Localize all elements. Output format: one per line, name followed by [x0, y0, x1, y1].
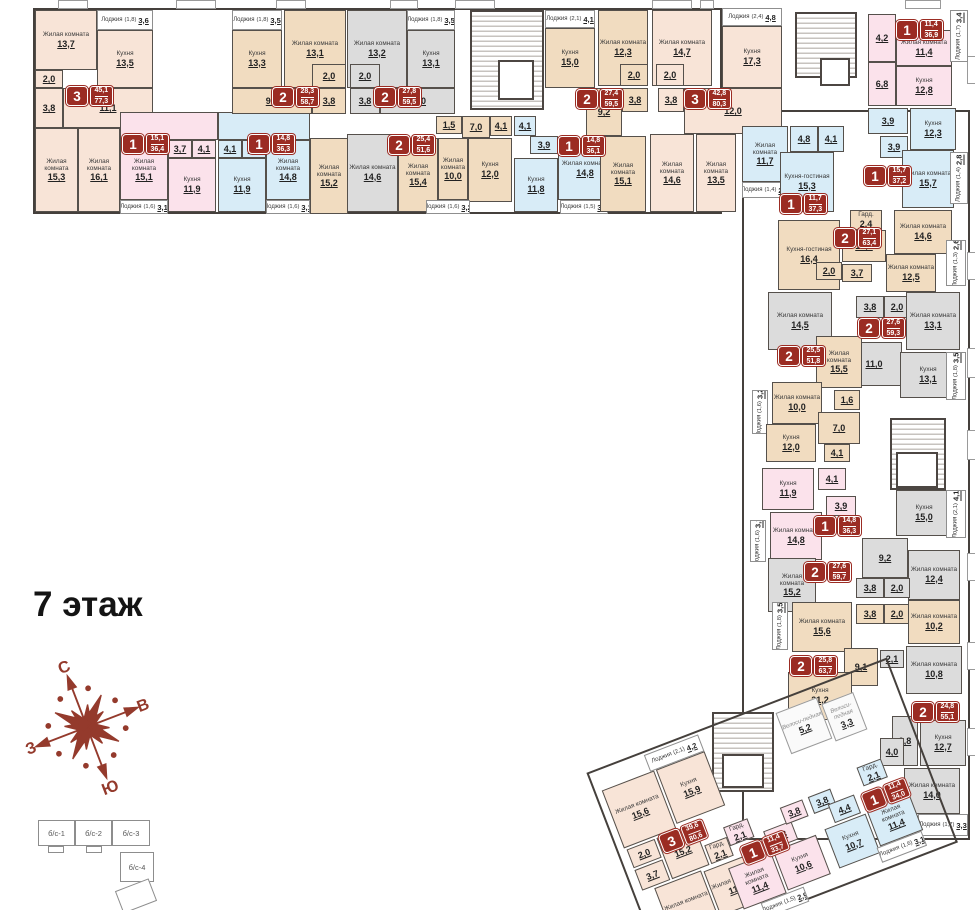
apt-14-living-room-3: Жилая комната13,1 [906, 292, 960, 350]
balcony-tab-15 [967, 728, 975, 756]
apartment-12-living-area: 11,7 [809, 194, 823, 204]
apartment-1-badge[interactable]: 345,177,3 [66, 86, 113, 106]
apt-8-living-room-2-area: 12,3 [614, 47, 632, 57]
apt-1-kitchen-2-area: 13,5 [116, 58, 134, 68]
apt-6-living-room-3-area: 15,4 [409, 177, 427, 187]
apt-10-loggia-2-name: Лоджия [956, 39, 963, 60]
key-plan-section-4-label: б/с-4 [129, 863, 146, 872]
apt-4-loggia-0-dims: (1,8) [256, 17, 268, 23]
apartment-15-living-area: 25,5 [807, 346, 821, 356]
apt-8-hall-5-area: 3,8 [629, 95, 642, 105]
apt-2-hall-3-area: 4,1 [198, 144, 211, 154]
apartment-4-living-area: 28,3 [301, 87, 315, 97]
apartment-18-badge[interactable]: 225,863,7 [790, 656, 837, 676]
apartment-2-badge[interactable]: 115,136,4 [122, 134, 169, 154]
balcony-tab-3 [276, 0, 306, 9]
apt-2-kitchen-4: Кухня11,9 [168, 158, 216, 212]
apt-5-kitchen-2-name: Кухня [422, 50, 439, 57]
compass-rose: С В Ю З [0, 630, 184, 824]
apartment-16-total-area: 36,3 [843, 527, 857, 536]
apt-15-kitchen-5-name: Кухня [782, 434, 799, 441]
apt-1-hall-4-area: 3,8 [43, 103, 56, 113]
apt-8-kitchen-1-area: 15,0 [561, 57, 579, 67]
apt-9-loggia-6-area: 4,8 [765, 13, 775, 22]
apartment-8-areas: 27,459,5 [600, 89, 624, 109]
apt-12-hall-2: 4,8 [790, 126, 818, 152]
apartment-16-badge[interactable]: 114,836,3 [814, 516, 861, 536]
apartment-11-rooms-count: 1 [864, 166, 886, 186]
apt-19-kitchen-3: Кухня12,7 [920, 720, 966, 766]
apt-18-hall-3-area: 2,0 [891, 609, 904, 619]
apartment-5-total-area: 59,5 [403, 98, 417, 107]
apt-9-living-room-4-area: 14,6 [663, 175, 681, 185]
apt-16-hall-2-area: 3,9 [835, 501, 848, 511]
apt-6-hall-2: 4,1 [490, 116, 512, 136]
apt-2-loggia-5: Лоджия(1,6)3,1 [120, 200, 168, 214]
apartment-10-living-area: 11,4 [925, 20, 939, 30]
apartment-6-total-area: 51,6 [417, 146, 431, 155]
apt-14-living-room-0-name: Жилая комната [777, 312, 823, 319]
apt-4-hall-5-area: 3,8 [323, 96, 336, 106]
apt-17-loggia-1: Лоджия(2,1)4,1 [946, 490, 966, 538]
apt-3-living-room-4-name: Жилая комната [267, 158, 309, 172]
apartment-14-badge[interactable]: 227,659,3 [858, 318, 905, 338]
apt-16-hall-2: 3,9 [826, 496, 856, 516]
apt-5-kitchen-2-area: 13,1 [422, 58, 440, 68]
apartment-13-rooms-count: 2 [834, 228, 856, 248]
apt-1-living-room-0-area: 13,7 [57, 39, 75, 49]
apt-4-kitchen-1-name: Кухня [248, 50, 265, 57]
apt-19-living-room-1-area: 10,8 [925, 669, 943, 679]
apt-21-loggia-5-name: Лоджия [762, 900, 784, 910]
key-plan-section-2: б/с-2 [75, 820, 112, 846]
apt-13-kitchen-living-0-name: Кухня-гостиная [786, 246, 831, 253]
apartment-12-badge[interactable]: 111,737,3 [780, 194, 827, 214]
apt-9-living-room-5-name: Жилая комната [697, 161, 735, 175]
apartment-9-badge[interactable]: 342,880,3 [684, 89, 731, 109]
apartment-16-rooms-count: 1 [814, 516, 836, 536]
compass-south-label: Ю [99, 776, 121, 799]
apt-7-living-room-3-area: 14,8 [576, 168, 594, 178]
apt-10-living-room-1-name: Жилая комната [901, 39, 947, 46]
apt-10-loggia-2-dims: (1,7) [956, 25, 962, 37]
apt-13-loggia-7-dims: (1,3) [953, 252, 959, 264]
apt-14-loggia-6: Лоджия(1,8)3,5 [946, 352, 966, 400]
apartment-12-total-area: 37,3 [809, 205, 823, 214]
apartment-15-rooms-count: 2 [778, 346, 800, 366]
apt-18-kitchen-6-name: Кухня [811, 687, 828, 694]
apt-7-loggia-4-name: Лоджия [560, 204, 581, 211]
apt-1-hall-3: 2,0 [35, 70, 63, 88]
apt-8-living-room-6: Жилая комната15,1 [600, 136, 646, 212]
apartment-19-rooms-count: 2 [912, 702, 934, 722]
apt-12-hall-3: 4,1 [818, 126, 844, 152]
apartment-7-areas: 14,836,1 [582, 136, 606, 156]
apt-6-living-room-4-area: 10,0 [444, 171, 462, 181]
apt-20-living-room-7-name: Жилая комната [663, 890, 709, 910]
apt-9-living-room-0-area: 14,7 [673, 47, 691, 57]
apartment-12-rooms-count: 1 [780, 194, 802, 214]
apt-13-hall-4: 2,0 [816, 262, 842, 280]
apt-4-living-room-6-area: 15,2 [320, 178, 338, 188]
apt-14-living-room-3-name: Жилая комната [910, 312, 956, 319]
apt-1-kitchen-2: Кухня13,5 [97, 30, 153, 88]
apt-11-loggia-4-area: 2,8 [955, 154, 964, 164]
apt-7-hall-1: 3,9 [530, 136, 558, 154]
apt-13-hall-5-area: 3,7 [851, 268, 864, 278]
apt-19-living-room-1: Жилая комната10,8 [906, 646, 962, 694]
apt-14-kitchen-5-area: 13,1 [919, 374, 937, 384]
apartment-17-badge[interactable]: 227,659,7 [804, 562, 851, 582]
apt-14-loggia-6-dims: (1,8) [953, 365, 959, 377]
apt-8-hall-3: 2,0 [620, 64, 648, 86]
apt-6-living-room-4: Жилая комната10,0 [438, 138, 468, 200]
compass-west-label: З [23, 738, 39, 758]
apt-2-hall-2: 3,7 [168, 140, 192, 158]
apt-16-loggia-4: Лоджия(1,6)3,1 [750, 520, 766, 562]
apt-19-kitchen-3-name: Кухня [934, 734, 951, 741]
apt-16-loggia-4-name: Лоджия [755, 544, 762, 562]
apartment-6-rooms-count: 2 [388, 135, 410, 155]
apartment-11-badge[interactable]: 115,737,2 [864, 166, 911, 186]
apt-15-kitchen-5: Кухня12,0 [766, 424, 816, 462]
elevator-1 [498, 60, 534, 100]
apartment-2-total-area: 36,4 [151, 145, 165, 154]
apt-11-loggia-4-name: Лоджия [956, 181, 963, 202]
apartment-2-living-area: 15,1 [151, 134, 165, 144]
apartment-8-badge[interactable]: 227,459,5 [576, 89, 623, 109]
key-plan-section-2-label: б/с-2 [85, 829, 102, 838]
apt-22-loggia-5-area: 3,1 [913, 834, 926, 846]
apartment-14-areas: 27,659,3 [882, 318, 906, 338]
elevator-2 [820, 58, 850, 86]
apt-12-loggia-1-name: Лоджия [742, 187, 762, 194]
apt-17-loggia-1-dims: (2,1) [953, 503, 959, 515]
apt-13-hall-5: 3,7 [842, 264, 872, 282]
apartment-2-areas: 15,136,4 [146, 134, 170, 154]
apt-9-hall-1-area: 2,0 [664, 70, 677, 80]
apt-19-kitchen-3-area: 12,7 [934, 742, 952, 752]
apt-19-living-room-5-area: 14,0 [923, 790, 941, 800]
apartment-14-living-area: 27,6 [887, 318, 901, 328]
apt-5-loggia-1-dims: (1,8) [430, 17, 442, 23]
apt-3-kitchen-3-area: 11,9 [233, 184, 250, 194]
apt-3-loggia-5-dims: (1,6) [287, 204, 299, 210]
apt-11-kitchen-1: Кухня12,3 [910, 108, 956, 150]
apartment-17-total-area: 59,7 [833, 573, 847, 582]
apt-17-hall-5: 3,8 [856, 578, 884, 598]
apt-5-living-room-6-name: Жилая комната [349, 164, 395, 171]
apt-7-hall-1-area: 3,9 [538, 140, 551, 150]
balcony-tab-6 [652, 0, 692, 9]
apartment-19-living-area: 24,8 [941, 702, 955, 712]
apt-5-living-room-0-name: Жилая комната [354, 40, 400, 47]
apartment-9-areas: 42,880,3 [708, 89, 732, 109]
apartment-10-badge[interactable]: 111,436,9 [896, 20, 943, 40]
apt-10-loggia-2-area: 3,4 [955, 12, 964, 22]
apt-13-living-room-3-area: 14,6 [914, 231, 932, 241]
apt-9-living-room-4-name: Жилая комната [651, 161, 693, 175]
apt-20-loggia-2-dims: (2,1) [673, 746, 686, 756]
apt-9-loggia-6: Лоджия(2,4)4,8 [722, 8, 782, 26]
apt-8-loggia-0-dims: (2,1) [569, 16, 581, 22]
apartment-15-badge[interactable]: 225,551,8 [778, 346, 825, 366]
apt-16-kitchen-0-name: Кухня [779, 480, 796, 487]
apt-7-loggia-4-dims: (1,5) [583, 204, 595, 210]
key-plan-outline-1 [48, 846, 64, 853]
apartment-9-living-area: 42,8 [713, 89, 727, 99]
apt-2-living-room-1-name: Жилая комната [121, 158, 167, 172]
apt-20-loggia-2-area: 4,2 [685, 740, 698, 752]
apt-6-loggia-6: Лоджия(1,6)3,2 [426, 200, 470, 214]
apt-18-hall-2-area: 3,8 [864, 609, 877, 619]
apt-2-loggia-5-area: 3,1 [157, 203, 167, 212]
apartment-13-badge[interactable]: 227,163,4 [834, 228, 881, 248]
apt-19-loggia-6: Лоджия(1,7)3,3 [918, 814, 968, 836]
apartment-13-living-area: 27,1 [863, 228, 877, 238]
apt-21-loggia-5-dims: (1,5) [783, 895, 796, 905]
apartment-4-rooms-count: 2 [272, 87, 294, 107]
apt-9-hall-2: 3,8 [658, 88, 684, 112]
apartment-19-badge[interactable]: 224,855,1 [912, 702, 959, 722]
apartment-18-total-area: 63,7 [819, 667, 833, 676]
apartment-17-rooms-count: 2 [804, 562, 826, 582]
apt-13-wardrobe-1: Гард.2,4 [850, 210, 882, 230]
key-plan-outline-2 [86, 846, 102, 853]
apt-17-hall-6-area: 2,0 [891, 583, 904, 593]
apt-18-living-room-0: Жилая комната15,6 [792, 602, 852, 652]
floor-plan: Жилая комната13,7Лоджия(1,8)3,6Кухня13,5… [0, 0, 975, 910]
apt-18-hall-3: 2,0 [884, 604, 910, 624]
apartment-4-badge[interactable]: 228,358,7 [272, 87, 319, 107]
apt-8-living-room-6-name: Жилая комната [601, 162, 645, 176]
apt-20-hall-3-area: 2,0 [636, 847, 651, 861]
apt-3-loggia-5-area: 3,1 [301, 203, 310, 212]
apt-14-loggia-6-area: 3,5 [952, 352, 961, 362]
apartment-6-badge[interactable]: 225,451,6 [388, 135, 435, 155]
apt-22-hall-1-area: 4,4 [837, 802, 852, 816]
apt-17-living-room-3-name: Жилая комната [911, 566, 957, 573]
apt-4-kitchen-1: Кухня13,3 [232, 30, 282, 88]
apt-18-living-room-4: Жилая комната10,2 [908, 600, 960, 644]
apt-16-living-room-3-name: Жилая комната [773, 527, 819, 534]
apt-2-living-room-1-area: 15,1 [135, 172, 153, 182]
apartment-17-areas: 27,659,7 [828, 562, 852, 582]
apartment-11-total-area: 37,2 [893, 177, 907, 186]
apt-11-living-room-3-name: Жилая комната [905, 170, 951, 177]
apartment-15-areas: 25,551,8 [802, 346, 826, 366]
apt-1-living-room-7: Жилая комната16,1 [78, 128, 120, 212]
balcony-tab-13 [967, 553, 975, 581]
apt-6-living-room-3-name: Жилая комната [399, 163, 437, 177]
key-plan-outline-3 [115, 878, 157, 910]
apt-15-living-room-0-area: 15,5 [830, 364, 848, 374]
key-plan-section-4: б/с-4 [120, 852, 154, 882]
apt-1-living-room-0-name: Жилая комната [43, 31, 89, 38]
apartment-1-rooms-count: 3 [66, 86, 88, 106]
apt-13-loggia-7: Лоджия(1,3)2,6 [946, 240, 966, 286]
apt-9-kitchen-7-name: Кухня [743, 48, 760, 55]
balcony-tab-14 [967, 642, 975, 670]
elevator-4 [722, 754, 764, 788]
apt-9-hall-2-area: 3,8 [665, 95, 678, 105]
apt-18-loggia-1-dims: (1,8) [777, 615, 783, 627]
apt-16-hall-1-area: 4,1 [826, 474, 839, 484]
apt-7-hall-0: 4,1 [514, 116, 536, 136]
apt-5-hall-3: 2,0 [350, 64, 380, 88]
apt-12-loggia-1-dims: (1,4) [764, 187, 776, 193]
apt-13-wardrobe-1-name: Гард. [858, 211, 874, 218]
apt-1-living-room-6-area: 15,3 [48, 172, 66, 182]
apt-17-living-room-3-area: 12,4 [925, 574, 943, 584]
apt-14-living-room-0-area: 14,5 [791, 320, 809, 330]
apartment-19-areas: 24,855,1 [936, 702, 960, 722]
apt-9-loggia-6-name: Лоджия [728, 14, 749, 21]
apartment-4-areas: 28,358,7 [296, 87, 320, 107]
apt-18-living-room-0-area: 15,6 [813, 626, 831, 636]
apt-18-loggia-1-area: 3,5 [776, 602, 785, 612]
apartment-7-badge[interactable]: 114,836,1 [558, 136, 605, 156]
apt-9-hall-1: 2,0 [656, 64, 684, 86]
apt-8-loggia-0-area: 4,1 [583, 15, 593, 24]
apt-1-loggia-1-area: 3,6 [138, 16, 148, 25]
apartment-12-areas: 11,737,3 [804, 194, 828, 214]
apt-11-hall-0: 3,9 [868, 108, 908, 134]
apartment-18-living-area: 25,8 [819, 656, 833, 666]
apt-4-hall-3-area: 2,0 [323, 71, 336, 81]
apartment-8-total-area: 59,5 [605, 100, 619, 109]
apt-15-hall-4: 7,0 [818, 412, 860, 444]
apartment-10-areas: 11,436,9 [920, 20, 944, 40]
apt-15-hall-6: 4,1 [824, 444, 850, 462]
apt-6-loggia-6-area: 3,2 [461, 203, 470, 212]
apartment-16-areas: 14,836,3 [838, 516, 862, 536]
apt-17-kitchen-0-name: Кухня [915, 504, 932, 511]
apt-15-hall-3-area: 1,6 [841, 395, 854, 405]
apt-2-kitchen-4-name: Кухня [183, 176, 200, 183]
apt-11-loggia-4-dims: (1,4) [956, 167, 962, 179]
apartment-5-badge[interactable]: 227,859,5 [374, 87, 421, 107]
apt-2-hall-2-area: 3,7 [174, 144, 187, 154]
apt-2-hall-3: 4,1 [192, 140, 216, 158]
apt-19-living-room-1-name: Жилая комната [911, 661, 957, 668]
apartment-11-living-area: 15,7 [893, 166, 907, 176]
apt-4-living-room-2-area: 13,1 [306, 48, 324, 58]
apartment-7-living-area: 14,8 [587, 136, 601, 146]
apt-16-loggia-4-area: 3,1 [754, 520, 763, 528]
apt-2-loggia-5-dims: (1,6) [143, 204, 155, 210]
apartment-3-total-area: 36,3 [277, 145, 291, 154]
apt-5-hall-3-area: 2,0 [359, 71, 372, 81]
apartment-11-areas: 15,737,2 [888, 166, 912, 186]
apt-19-hall-4-area: 4,0 [886, 747, 899, 757]
balcony-tab-9 [967, 56, 975, 84]
apartment-1-total-area: 77,3 [95, 97, 109, 106]
apt-7-kitchen-2-area: 11,8 [527, 184, 544, 194]
apartment-8-living-area: 27,4 [605, 89, 619, 99]
apt-19-living-room-5-name: Жилая комната [909, 782, 955, 789]
apartment-3-areas: 14,836,3 [272, 134, 296, 154]
apt-13-loggia-7-area: 2,6 [952, 240, 961, 250]
apt-1-loggia-1: Лоджия(1,8)3,6 [97, 10, 153, 30]
apt-11-living-room-3-area: 15,7 [919, 178, 937, 188]
apt-7-hall-0-area: 4,1 [519, 121, 532, 131]
apt-18-loggia-1-name: Лоджия [777, 629, 784, 650]
apt-1-living-room-7-area: 16,1 [90, 172, 108, 182]
apt-19-hall-0-area: 2,1 [886, 654, 899, 664]
apt-1-loggia-1-dims: (1,8) [124, 17, 136, 23]
apt-15-loggia-2-area: 3,2 [756, 390, 765, 399]
apt-8-loggia-0: Лоджия(2,1)4,1 [545, 10, 595, 28]
apt-3-loggia-5-name: Лоджия [266, 204, 285, 211]
apartment-1-living-area: 45,1 [95, 86, 109, 96]
apt-21-hall-2: 3,8 [780, 799, 809, 824]
apt-14-hall-2-area: 2,0 [891, 302, 904, 312]
apt-11-hall-2-area: 3,9 [888, 142, 901, 152]
apartment-2-rooms-count: 1 [122, 134, 144, 154]
apt-9-kitchen-7-area: 17,3 [743, 56, 761, 66]
apt-8-kitchen-1-name: Кухня [561, 49, 578, 56]
apt-10-kitchen-4-area: 12,8 [915, 85, 933, 95]
apt-5-loggia-1: Лоджия(1,8)3,5 [407, 10, 455, 30]
apt-17-kitchen-0: Кухня15,0 [896, 490, 952, 536]
apartment-10-rooms-count: 1 [896, 20, 918, 40]
apt-16-hall-1: 4,1 [818, 468, 846, 490]
apartment-5-living-area: 27,8 [403, 87, 417, 97]
balcony-tab-8 [905, 0, 941, 9]
apt-15-living-room-1-name: Жилая комната [774, 394, 820, 401]
apt-15-living-room-1: Жилая комната10,0 [772, 382, 822, 424]
apt-13-living-room-6: Жилая комната12,5 [886, 254, 936, 292]
apartment-14-rooms-count: 2 [858, 318, 880, 338]
apt-15-loggia-2-dims: (1,6) [757, 401, 763, 413]
apt-15-kitchen-5-area: 12,0 [782, 442, 800, 452]
apt-14-hall-1: 3,8 [856, 296, 884, 318]
apartment-19-total-area: 55,1 [941, 713, 955, 722]
apt-15-loggia-2-name: Лоджия [757, 415, 764, 434]
apt-6-hall-1: 7,0 [462, 116, 490, 138]
apartment-3-badge[interactable]: 114,836,3 [248, 134, 295, 154]
apt-15-hall-4-area: 7,0 [833, 423, 846, 433]
apt-11-kitchen-1-area: 12,3 [924, 128, 942, 138]
apt-8-living-room-2-name: Жилая комната [600, 39, 646, 46]
apt-11-loggia-4: Лоджия(1,4)2,8 [950, 152, 968, 204]
apt-6-living-room-4-name: Жилая комната [439, 157, 467, 171]
apt-5-loggia-1-name: Лоджия [407, 17, 428, 24]
apt-10-kitchen-4: Кухня12,8 [896, 66, 952, 106]
apt-14-loggia-6-name: Лоджия [953, 379, 960, 400]
apartment-10-total-area: 36,9 [925, 31, 939, 40]
apt-17-hall-6: 2,0 [884, 578, 910, 598]
apt-15-hall-6-area: 4,1 [831, 448, 844, 458]
apt-17-hall-2-area: 9,2 [879, 553, 892, 563]
apt-16-kitchen-0: Кухня11,9 [762, 468, 814, 510]
apt-4-kitchen-1-area: 13,3 [248, 58, 266, 68]
apt-17-living-room-4-area: 15,2 [783, 587, 801, 597]
apt-13-living-room-3: Жилая комната14,6 [894, 210, 952, 254]
balcony-tab-7 [700, 0, 714, 9]
apt-8-hall-5: 3,8 [622, 88, 648, 112]
apt-21-hall-2-area: 3,8 [787, 805, 802, 819]
apt-4-loggia-0: Лоджия(1,8)3,5 [232, 10, 282, 30]
apt-3-living-room-4-area: 14,8 [279, 172, 297, 182]
apt-5-living-room-0-area: 13,2 [368, 48, 386, 58]
elevator-3 [896, 452, 938, 488]
apt-10-hall-3: 6,8 [868, 62, 896, 106]
apt-3-loggia-5: Лоджия(1,6)3,1 [266, 200, 310, 214]
apartment-7-total-area: 36,1 [587, 147, 601, 156]
key-plan-section-1: б/с-1 [38, 820, 75, 846]
